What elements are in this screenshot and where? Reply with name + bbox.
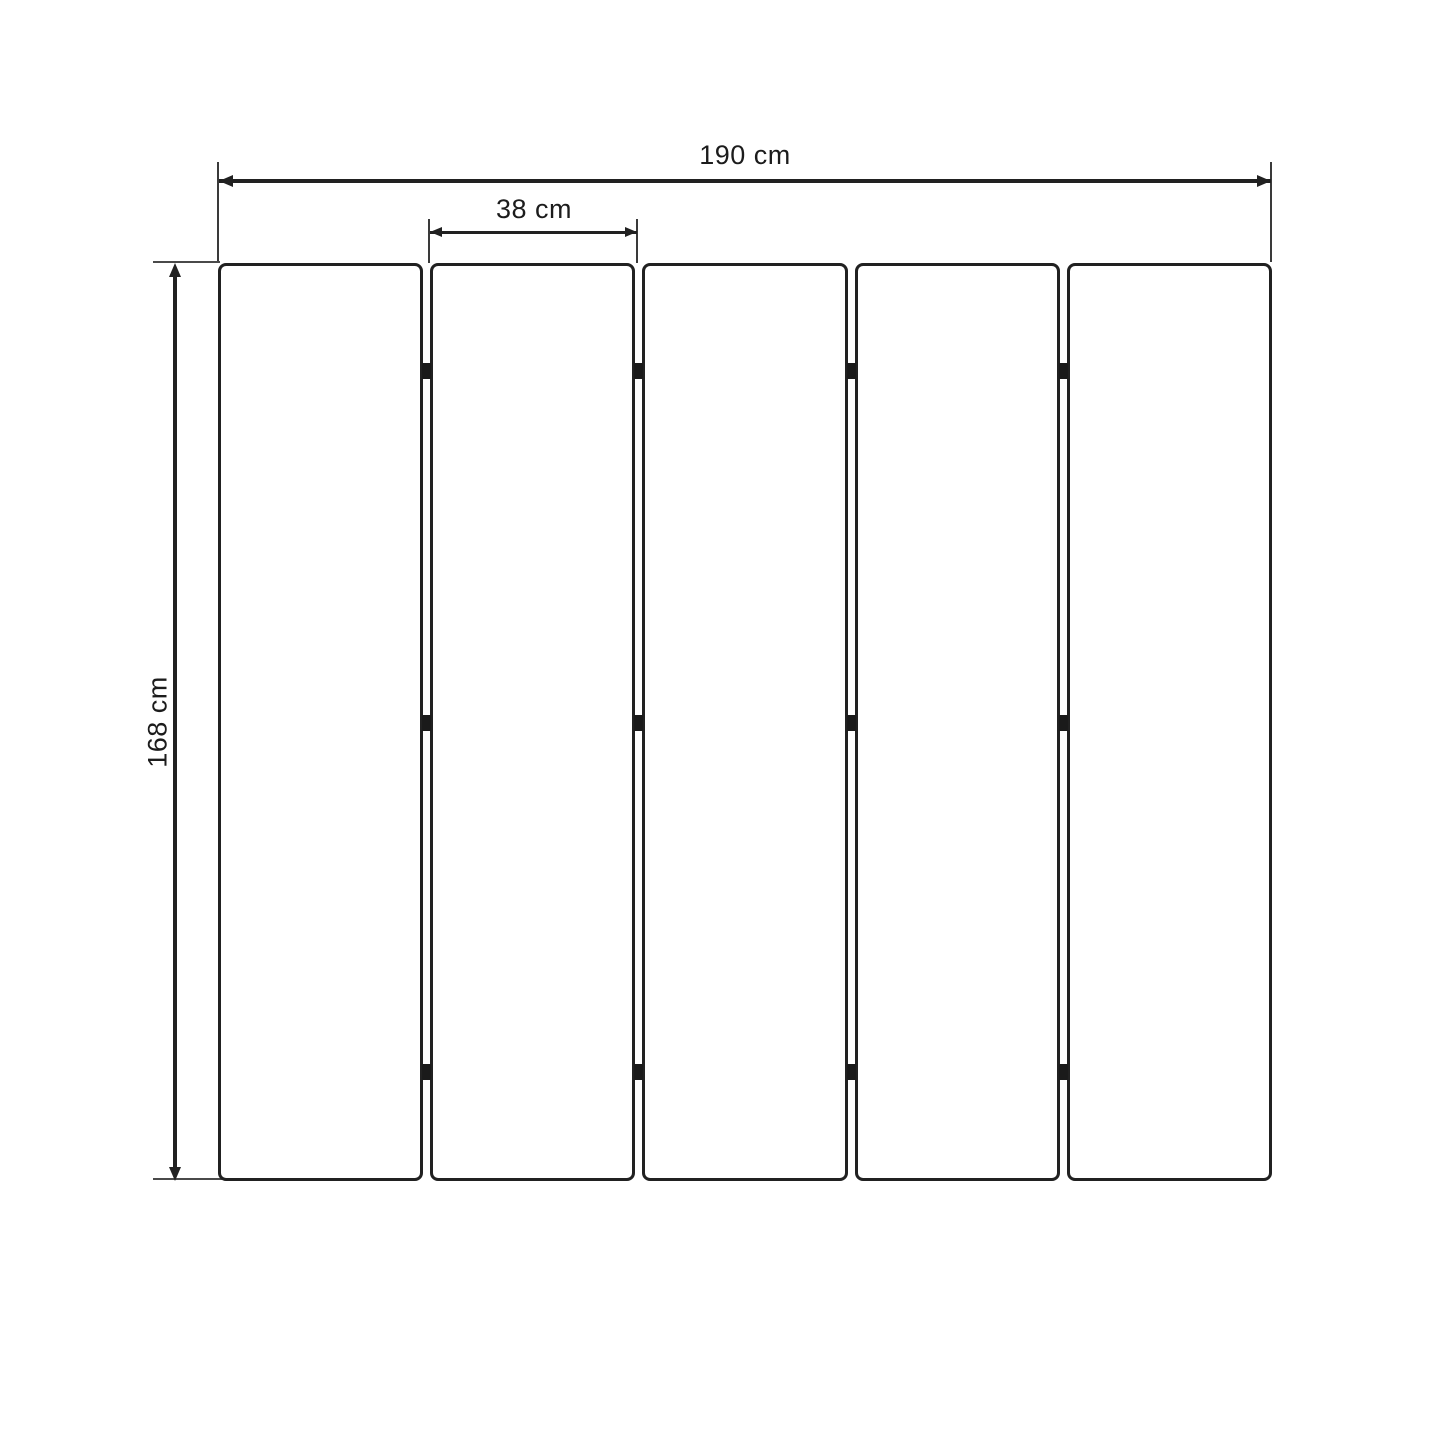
hinge-mark <box>422 363 431 379</box>
panel-5 <box>1067 263 1272 1181</box>
arrowhead-left-icon <box>430 227 442 237</box>
hinge-mark <box>847 363 856 379</box>
panels <box>218 263 1272 1181</box>
hinge-mark <box>1059 1064 1068 1080</box>
hinge-mark <box>1059 363 1068 379</box>
arrowhead-left-icon <box>219 175 233 187</box>
hinge-mark <box>1059 715 1068 731</box>
arrowhead-right-icon <box>625 227 637 237</box>
height-dimension-line <box>173 272 177 1172</box>
height-label: 168 cm <box>143 676 174 768</box>
arrowhead-up-icon <box>169 263 181 277</box>
extension-line <box>153 261 220 263</box>
extension-line <box>636 219 638 263</box>
hinge-mark <box>634 715 643 731</box>
extension-line <box>153 1178 222 1180</box>
arrowhead-right-icon <box>1257 175 1271 187</box>
arrowhead-down-icon <box>169 1167 181 1181</box>
hinge-mark <box>422 1064 431 1080</box>
panel-1 <box>218 263 423 1181</box>
total-width-dimension-line <box>219 179 1271 183</box>
hinge-mark <box>634 1064 643 1080</box>
hinge-mark <box>634 363 643 379</box>
hinge-mark <box>847 1064 856 1080</box>
panel-width-dimension-line <box>430 231 637 234</box>
extension-line <box>428 219 430 263</box>
hinge-mark <box>422 715 431 731</box>
panel-4 <box>855 263 1060 1181</box>
panel-2 <box>430 263 635 1181</box>
panel-3 <box>642 263 847 1181</box>
panel-width-label: 38 cm <box>430 194 638 225</box>
dimension-diagram: 190 cm 38 cm 168 cm <box>0 0 1445 1445</box>
total-width-label: 190 cm <box>218 140 1272 171</box>
hinge-mark <box>847 715 856 731</box>
